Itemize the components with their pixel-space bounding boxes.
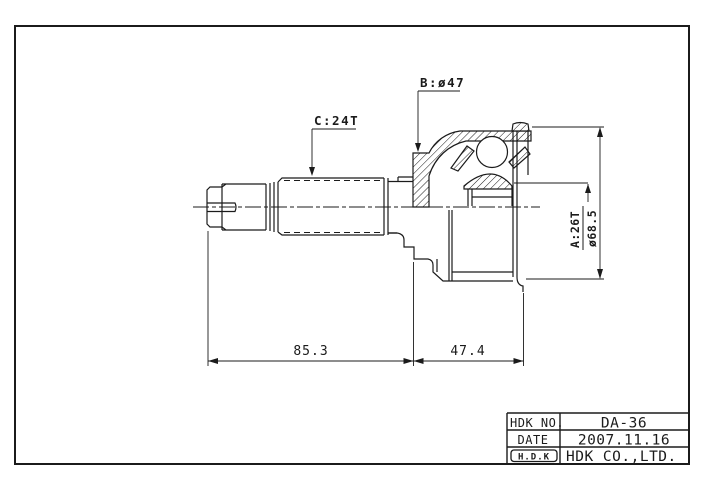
arrowhead	[514, 358, 524, 364]
joint-lower-outline	[388, 210, 513, 281]
arrowhead	[597, 127, 603, 137]
outer-race-stub-section	[512, 123, 529, 132]
dim-c	[309, 129, 356, 176]
hdk-logo-text: H.D.K	[518, 453, 550, 463]
shaft	[207, 177, 414, 235]
drawing-sheet: B:ø47 C:24T A:26T ø68.5 85.3 47.4 HDK NO…	[0, 0, 720, 480]
arrowhead	[404, 358, 414, 364]
label-b: B:ø47	[420, 75, 465, 90]
label-a-group: A:26T ø68.5	[568, 206, 599, 250]
dim-text-right: 47.4	[450, 344, 485, 359]
title-block-company: HDK CO.,LTD.	[566, 449, 677, 465]
arrowhead	[208, 358, 218, 364]
arrowhead	[415, 143, 421, 152]
dim-a	[514, 183, 591, 202]
title-block-date-value: 2007.11.16	[578, 433, 670, 449]
bearing-ball	[477, 137, 508, 168]
shaft-neck	[388, 177, 414, 233]
label-a-diameter: ø68.5	[585, 210, 599, 247]
title-block-no-value: DA-36	[601, 416, 647, 432]
title-block: HDK NO. DA-36 DATE 2007.11.16 H.D.K HDK …	[507, 413, 689, 465]
cage-section-left	[451, 146, 474, 171]
dim-diameter	[526, 127, 604, 279]
title-block-date-label: DATE	[518, 433, 549, 447]
dimensions	[208, 91, 604, 366]
cage-section-right	[509, 147, 530, 168]
title-block-no-label: HDK NO.	[510, 416, 564, 430]
arrowhead	[597, 269, 603, 279]
arrowhead	[309, 167, 315, 176]
shaft-spline	[278, 178, 384, 235]
inner-race-section	[464, 174, 512, 189]
arrowhead	[585, 184, 591, 193]
label-a-spline: A:26T	[568, 211, 582, 248]
label-c: C:24T	[314, 113, 359, 128]
arrowhead	[414, 358, 424, 364]
dim-text-left: 85.3	[293, 344, 328, 359]
